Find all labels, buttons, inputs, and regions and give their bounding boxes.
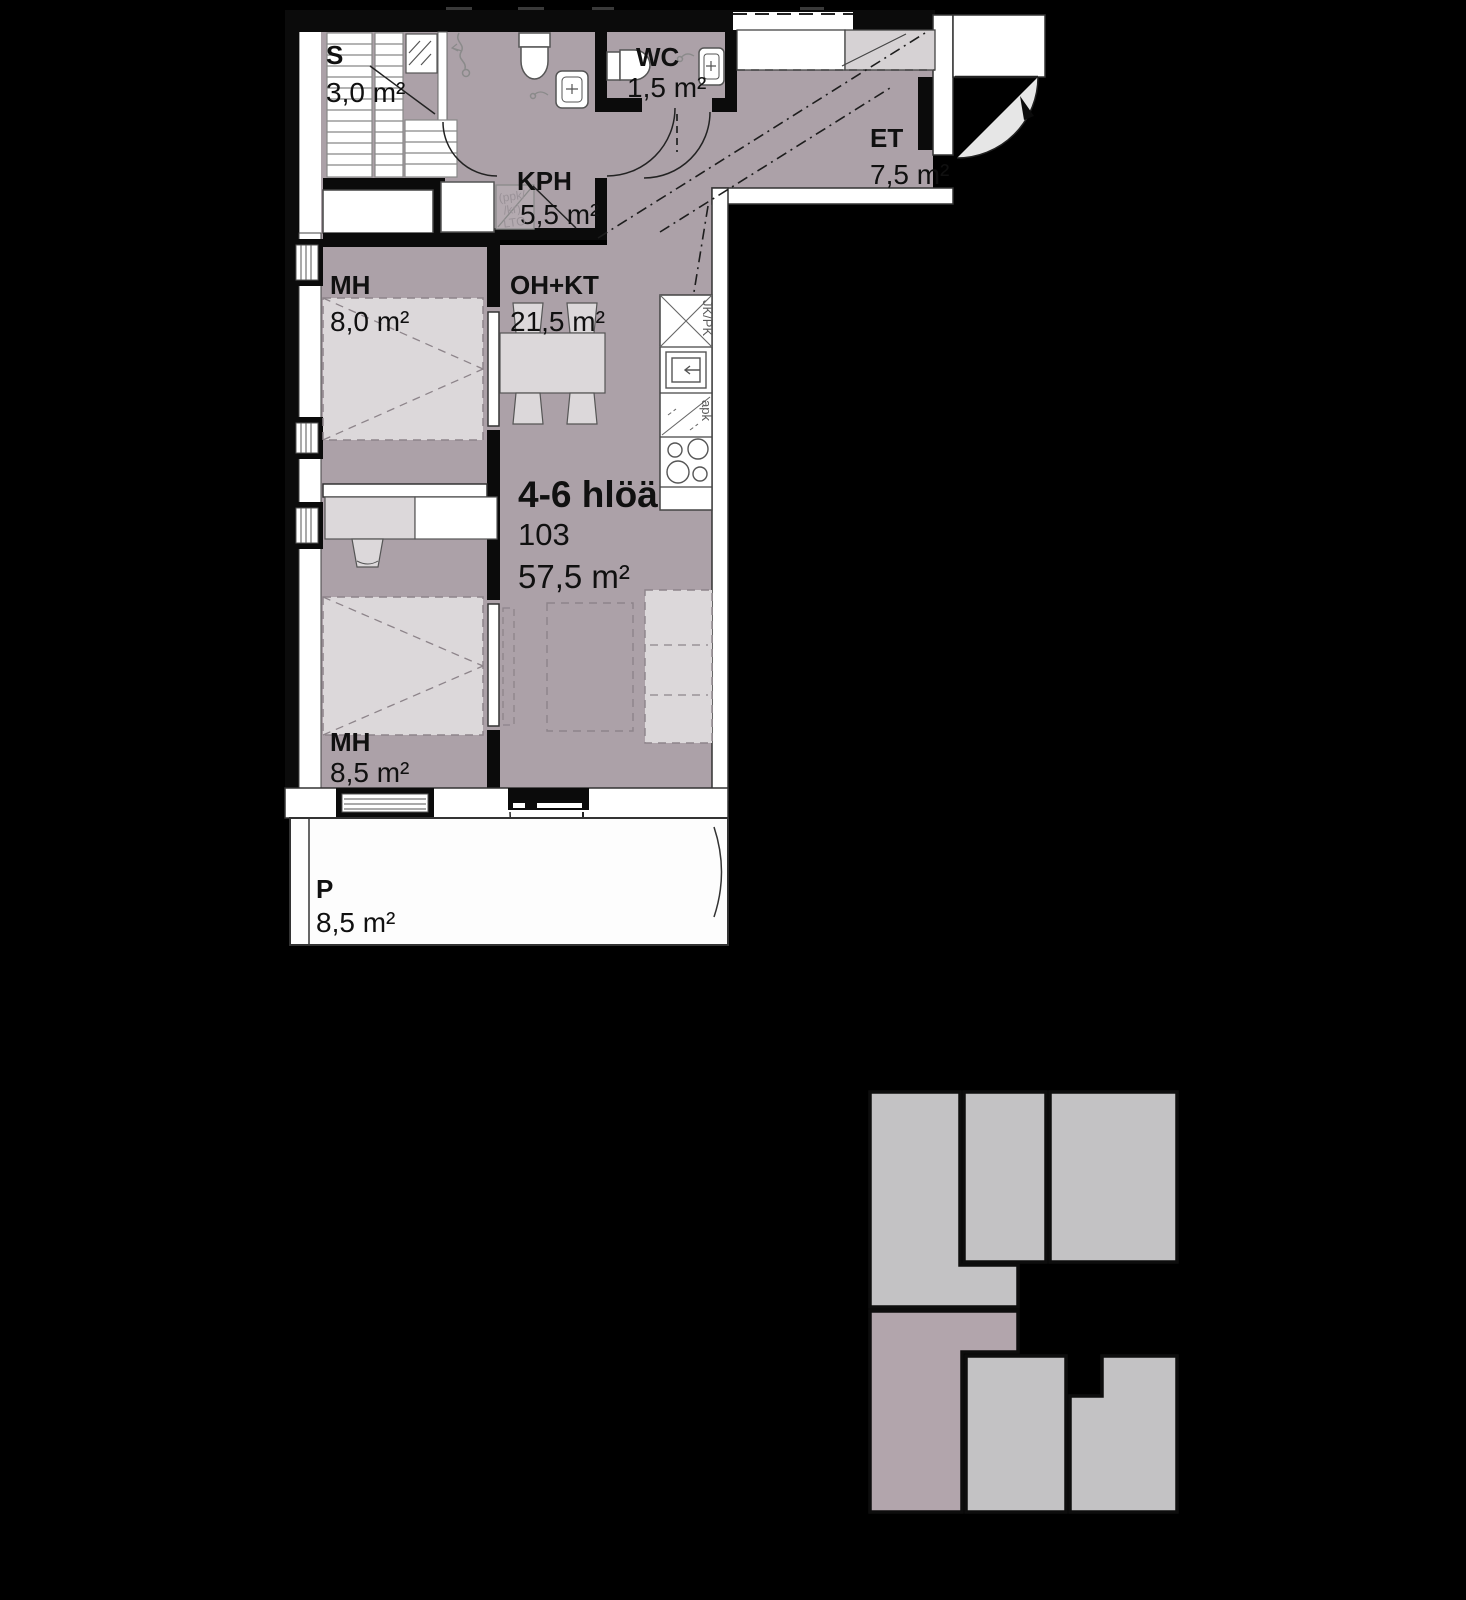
wall-left-spine — [285, 10, 299, 795]
wall-sauna-kph — [438, 32, 447, 120]
dining-chair-3 — [513, 393, 543, 424]
label-dishwasher: apk — [699, 400, 714, 421]
kph-toilet-icon — [519, 33, 550, 79]
site-plan — [870, 1092, 1177, 1512]
label-kph-area: 5,5 m² — [520, 199, 599, 230]
sliding-door-mh1 — [488, 312, 499, 426]
sauna-heater-icon — [406, 34, 437, 73]
label-ohkt-area: 21,5 m² — [510, 306, 605, 337]
entry-door — [918, 15, 1045, 158]
washer-space — [441, 182, 494, 232]
dining-chair-4 — [567, 393, 597, 424]
label-mh2-name: MH — [330, 727, 370, 757]
window-left-1 — [289, 239, 323, 286]
label-wc-area: 1,5 m² — [627, 72, 706, 103]
et-closet-gray — [845, 30, 935, 70]
floor-hall — [607, 188, 712, 248]
bed-2 — [323, 597, 483, 735]
label-occupancy: 4-6 hlöä — [518, 474, 658, 515]
wall-right — [712, 188, 728, 800]
label-mh2-area: 8,5 m² — [330, 757, 409, 788]
sliding-door-mh2 — [488, 604, 499, 726]
dining-table — [500, 333, 605, 393]
desk — [325, 497, 415, 539]
site-unit-f — [1070, 1356, 1177, 1512]
label-total-area: 57,5 m² — [518, 558, 630, 595]
label-wc-name: WC — [636, 42, 680, 72]
wall-et-bottom — [712, 188, 953, 204]
label-balcony-area: 8,5 m² — [316, 907, 395, 938]
label-balcony-name: P — [316, 874, 333, 904]
site-unit-c — [1050, 1092, 1177, 1262]
sofa — [645, 590, 712, 743]
window-left-2 — [289, 417, 323, 459]
desk-chair — [352, 539, 383, 567]
et-closet-white — [737, 30, 845, 70]
wall-wc-bottom-right — [712, 98, 737, 112]
wall-divider-a — [487, 238, 500, 307]
label-unit-number: 103 — [518, 517, 570, 552]
label-sauna-area: 3,0 m² — [326, 77, 405, 108]
bedroom2-furniture — [323, 497, 497, 735]
site-unit-e — [966, 1356, 1066, 1512]
wall-between-bedrooms — [323, 484, 487, 497]
wall-sauna-bottom — [323, 178, 445, 190]
label-kph-name: KPH — [517, 166, 572, 196]
wall-divider-c — [487, 730, 500, 788]
label-fridge: JK/PK — [700, 300, 715, 336]
oven-icon — [666, 352, 706, 388]
floorplan-page: S 3,0 m² KPH 5,5 m² WC 1,5 m² ET 7,5 m² … — [0, 0, 1466, 1600]
label-mh1-name: MH — [330, 270, 370, 300]
label-et-area: 7,5 m² — [870, 159, 949, 190]
label-ohkt-name: OH+KT — [510, 270, 599, 300]
window-left-3 — [289, 502, 323, 549]
floorplan-drawing: S 3,0 m² KPH 5,5 m² WC 1,5 m² ET 7,5 m² … — [0, 0, 1466, 1600]
dresser — [415, 497, 497, 539]
closet-hall — [323, 190, 433, 233]
label-et-name: ET — [870, 123, 903, 153]
site-unit-b — [964, 1092, 1046, 1262]
label-mh1-area: 8,0 m² — [330, 306, 409, 337]
label-sauna-name: S — [326, 40, 343, 70]
window-balcony — [336, 788, 434, 818]
